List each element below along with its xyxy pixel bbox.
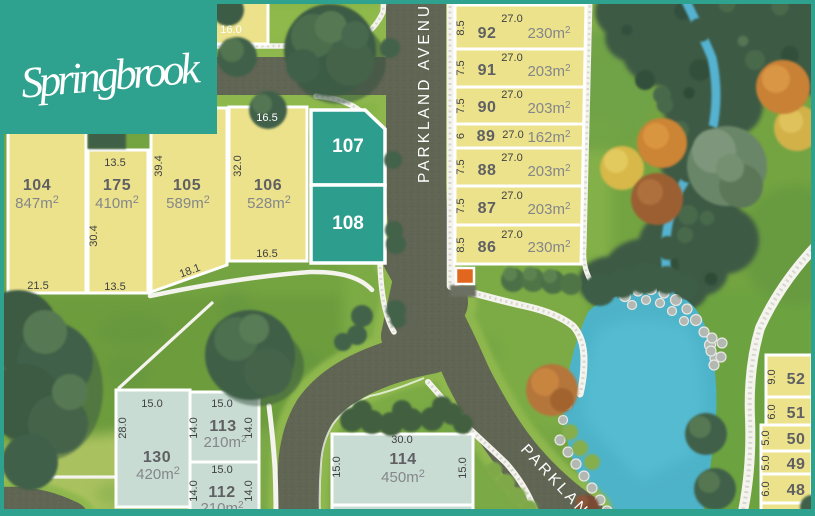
svg-text:90: 90 <box>478 99 497 116</box>
svg-text:847m2: 847m2 <box>15 194 59 212</box>
svg-text:7.5: 7.5 <box>455 159 467 174</box>
svg-text:91: 91 <box>478 62 497 79</box>
svg-text:8.5: 8.5 <box>455 237 467 252</box>
svg-text:14.0: 14.0 <box>188 480 200 501</box>
svg-text:105: 105 <box>173 177 201 194</box>
svg-text:104: 104 <box>23 177 51 194</box>
svg-text:15.0: 15.0 <box>211 398 232 410</box>
svg-text:230m2: 230m2 <box>527 239 571 256</box>
svg-text:28.0: 28.0 <box>117 417 129 438</box>
svg-text:410m2: 410m2 <box>95 194 139 212</box>
svg-text:30.4: 30.4 <box>88 225 100 246</box>
svg-text:162m2: 162m2 <box>527 129 571 146</box>
svg-text:203m2: 203m2 <box>527 100 571 117</box>
svg-text:89: 89 <box>477 128 496 145</box>
svg-text:7.5: 7.5 <box>455 60 467 75</box>
svg-text:32.0: 32.0 <box>232 155 244 176</box>
svg-text:27.0: 27.0 <box>501 89 522 101</box>
svg-text:16.5: 16.5 <box>256 112 277 124</box>
svg-text:420m2: 420m2 <box>136 465 180 483</box>
svg-text:51: 51 <box>787 405 806 422</box>
svg-text:48: 48 <box>787 482 806 499</box>
svg-text:14.0: 14.0 <box>243 480 255 501</box>
svg-text:203m2: 203m2 <box>527 201 571 218</box>
svg-text:87: 87 <box>478 200 497 217</box>
svg-text:27.0: 27.0 <box>501 190 522 202</box>
svg-text:230m2: 230m2 <box>527 25 571 42</box>
svg-text:39.4: 39.4 <box>153 155 165 176</box>
svg-text:50: 50 <box>787 431 806 448</box>
svg-text:589m2: 589m2 <box>166 194 210 212</box>
svg-text:7.5: 7.5 <box>455 198 467 213</box>
svg-text:15.0: 15.0 <box>211 464 232 476</box>
svg-text:114: 114 <box>389 451 416 468</box>
svg-text:49: 49 <box>787 456 806 473</box>
svg-text:130: 130 <box>143 449 171 466</box>
svg-text:13.5: 13.5 <box>104 157 125 169</box>
svg-text:8.5: 8.5 <box>455 20 467 35</box>
svg-text:15.0: 15.0 <box>457 457 469 478</box>
svg-text:6.0: 6.0 <box>760 481 772 496</box>
svg-text:21.5: 21.5 <box>27 280 48 292</box>
svg-text:113: 113 <box>209 418 236 435</box>
svg-text:13.5: 13.5 <box>104 281 125 293</box>
svg-text:7.5: 7.5 <box>455 98 467 113</box>
svg-text:52: 52 <box>787 371 806 388</box>
svg-text:112: 112 <box>208 484 235 501</box>
svg-text:15.0: 15.0 <box>331 456 343 477</box>
svg-text:450m2: 450m2 <box>381 468 425 486</box>
svg-text:108: 108 <box>332 213 364 234</box>
svg-text:30.0: 30.0 <box>391 434 412 446</box>
svg-text:203m2: 203m2 <box>527 163 571 180</box>
svg-text:6.0: 6.0 <box>766 404 778 419</box>
svg-text:92: 92 <box>478 25 497 42</box>
svg-text:15.0: 15.0 <box>141 398 162 410</box>
svg-text:9.0: 9.0 <box>766 369 778 384</box>
svg-text:5.0: 5.0 <box>760 430 772 445</box>
svg-text:210m2: 210m2 <box>203 434 247 451</box>
svg-text:86: 86 <box>478 239 497 256</box>
svg-text:14.0: 14.0 <box>188 417 200 438</box>
svg-text:PARKLAND AVENUE: PARKLAND AVENUE <box>416 0 433 183</box>
svg-text:27.0: 27.0 <box>501 13 522 25</box>
svg-text:528m2: 528m2 <box>247 194 291 212</box>
svg-text:27.0: 27.0 <box>501 52 522 64</box>
svg-text:6: 6 <box>455 133 467 139</box>
svg-text:27.0: 27.0 <box>501 229 522 241</box>
svg-text:88: 88 <box>478 162 497 179</box>
svg-text:16.5: 16.5 <box>256 248 277 260</box>
svg-text:16.0: 16.0 <box>220 24 241 36</box>
svg-text:107: 107 <box>332 136 364 157</box>
svg-text:5.0: 5.0 <box>760 455 772 470</box>
svg-text:27.0: 27.0 <box>501 152 522 164</box>
svg-text:27.0: 27.0 <box>502 129 523 141</box>
svg-text:175: 175 <box>103 177 131 194</box>
svg-text:106: 106 <box>254 177 282 194</box>
svg-text:203m2: 203m2 <box>527 63 571 80</box>
